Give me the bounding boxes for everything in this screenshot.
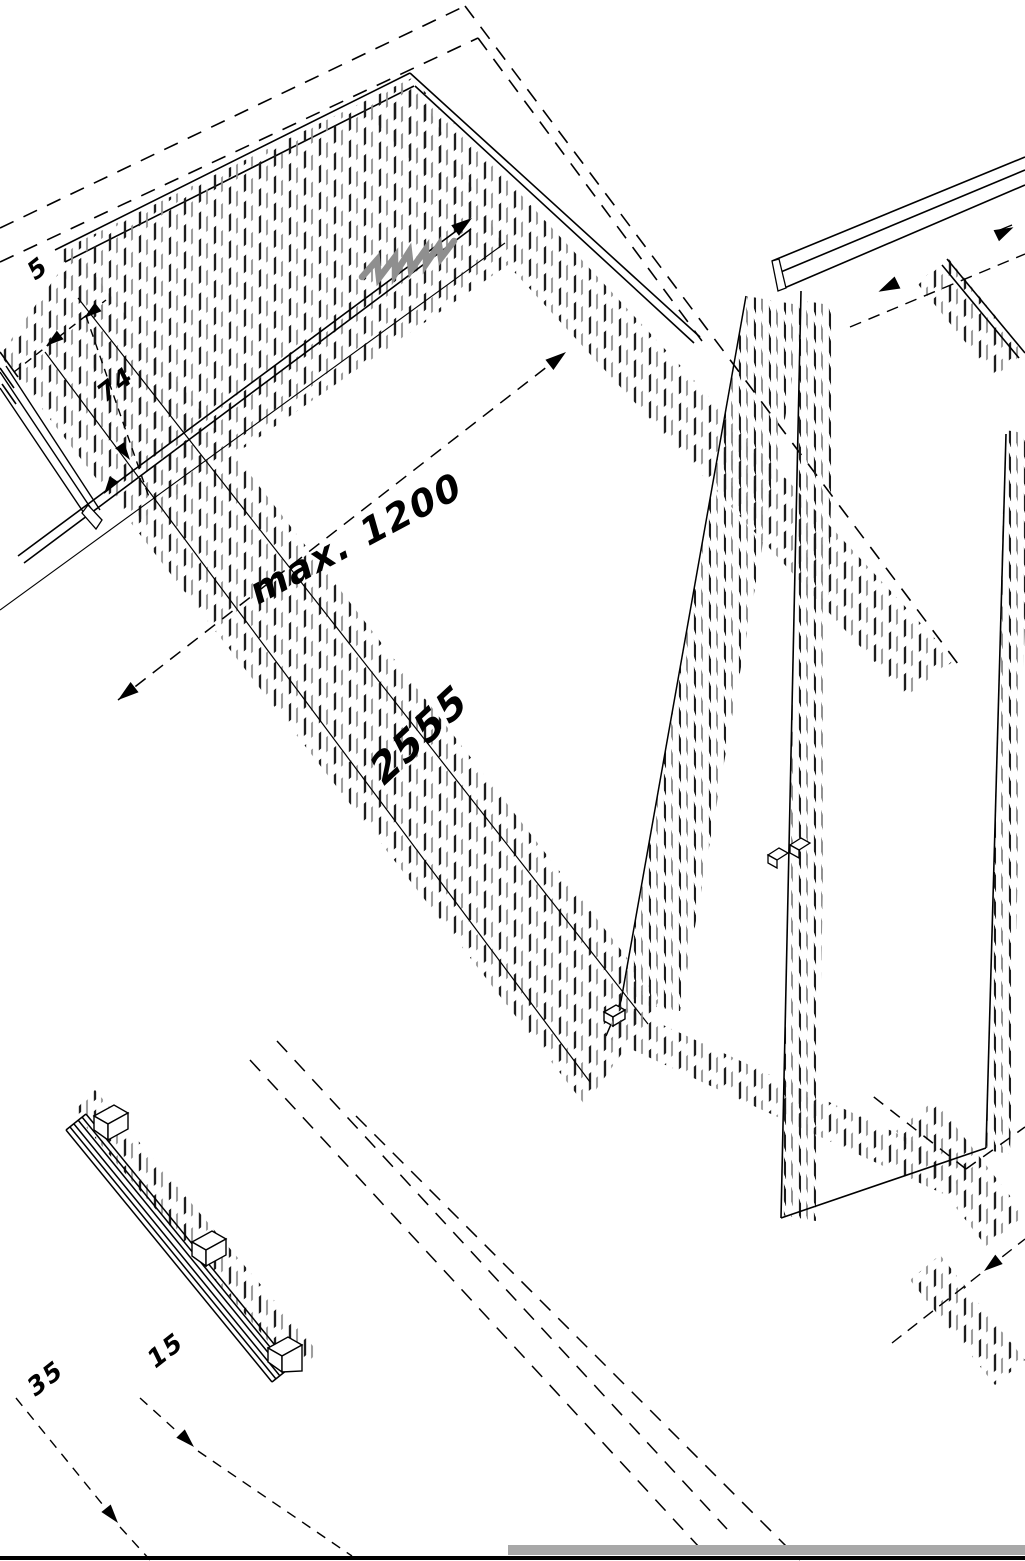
dim-arrow	[176, 1429, 198, 1451]
top-track-right	[772, 157, 1025, 327]
floor-gray-strip	[508, 1545, 1025, 1555]
technical-drawing-page: 2555 max. 1200 5	[0, 0, 1025, 1561]
dim-top-gap-label: 5	[24, 249, 52, 287]
dim-arrow	[114, 682, 139, 705]
rail-arrow	[877, 277, 899, 296]
dim-bottom-right-label: 15	[144, 1325, 187, 1375]
right-door-right-edge-hatch	[986, 430, 1025, 1154]
right-lower-hatch-b	[910, 1255, 1025, 1385]
dimension-bottom-left: 35	[16, 1353, 150, 1560]
dim-arrow	[101, 1504, 122, 1526]
lower-dashed-outline	[250, 1041, 800, 1560]
dimension-bottom-right: 15	[140, 1325, 352, 1556]
dim-bottom-left-label: 35	[24, 1353, 67, 1403]
floor-line	[0, 1556, 1025, 1560]
bottom-guide-track: 35 15	[16, 1090, 352, 1560]
right-door-left-edge-hatch	[781, 300, 835, 1221]
dim-arrow	[980, 1255, 1002, 1276]
dim-arrow	[545, 347, 570, 370]
technical-drawing: 2555 max. 1200 5	[0, 0, 1025, 1561]
